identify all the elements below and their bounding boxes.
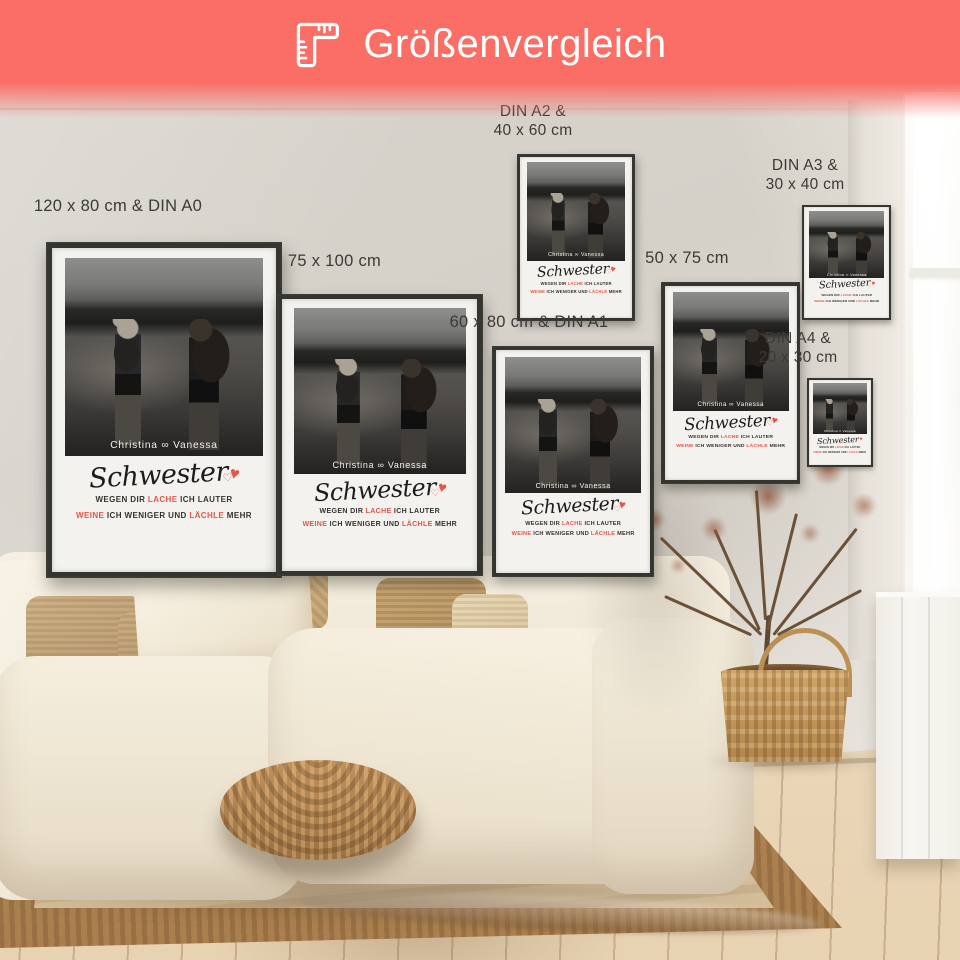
poster-120x80-din-a0: Christina ∞ Vanessa Schwester ♡ ♥ WEGEN … <box>46 242 282 578</box>
poster-names: Christina ∞ Vanessa <box>294 460 466 470</box>
radiator-cabinet <box>876 592 960 859</box>
poster-names: Christina ∞ Vanessa <box>65 440 262 451</box>
poster-caption-2: WEINE ICH WENIGER UND LÄCHLE MEHR <box>294 521 466 528</box>
woven-pouf <box>220 760 416 860</box>
header-banner: Größenvergleich <box>0 0 960 118</box>
window-glare <box>905 95 960 610</box>
poster-caption-1: WEGEN DIR LACHE ICH LAUTER <box>527 281 626 286</box>
poster-photo: Christina ∞ Vanessa <box>809 211 884 279</box>
poster-75x100: Christina ∞ Vanessa Schwester ♡ ♥ WEGEN … <box>277 294 483 577</box>
heart-icon: ♥ <box>770 415 779 427</box>
poster-caption-1: WEGEN DIR LACHE ICH LAUTER <box>294 508 466 515</box>
poster-photo: Christina ∞ Vanessa <box>65 258 262 456</box>
throw-pillow <box>452 594 528 670</box>
basket-opening <box>722 664 848 682</box>
heart-icon: ♥ <box>435 481 447 498</box>
poster-title: Schwester <box>520 495 618 519</box>
cabinet-groove <box>928 597 930 859</box>
plant-trunk <box>757 615 771 745</box>
poster-title: Schwester <box>89 458 229 492</box>
poster-names: Christina ∞ Vanessa <box>809 273 884 277</box>
poster-din-a2-40x60: Christina ∞ Vanessa Schwester ♡ ♥ WEGEN … <box>517 154 635 321</box>
poster-title: Schwester <box>684 412 771 433</box>
poster-title: Schwester <box>819 279 871 292</box>
poster-caption-1: WEGEN DIR LACHE ICH LAUTER <box>809 293 884 297</box>
woven-basket <box>718 670 852 762</box>
size-label-din-a4-20x30: DIN A4 & 20 x 30 cm <box>723 330 873 368</box>
poster-names: Christina ∞ Vanessa <box>673 401 789 408</box>
poster-50x75: Christina ∞ Vanessa Schwester ♡ ♥ WEGEN … <box>661 282 800 483</box>
throw-pillow <box>376 578 486 668</box>
poster-caption-2: WEINE ICH WENIGER UND LÄCHLE MEHR <box>673 444 789 449</box>
poster-caption-1: WEGEN DIR LACHE ICH LAUTER <box>505 521 641 527</box>
poster-title: Schwester <box>313 476 436 506</box>
throw-pillow <box>133 564 316 676</box>
poster-din-a3-30x40: Christina ∞ Vanessa Schwester ♡ ♥ WEGEN … <box>802 205 891 320</box>
throw-pillow <box>26 596 144 680</box>
poster-caption-2: WEINE ICH WENIGER UND LÄCHLE MEHR <box>65 511 262 520</box>
poster-photo: Christina ∞ Vanessa <box>813 383 868 435</box>
basket-handle <box>758 628 852 697</box>
poster-60x80-din-a1: Christina ∞ Vanessa Schwester ♡ ♥ WEGEN … <box>492 346 654 577</box>
poster-caption-2: WEINE ICH WENIGER UND LÄCHLE MEHR <box>527 289 626 294</box>
size-label-60x80-din-a1: 60 x 80 cm & DIN A1 <box>429 312 629 332</box>
cabinet-groove <box>901 597 903 859</box>
throw-pillow <box>118 612 222 690</box>
poster-caption-2: WEINE ICH WENIGER UND LÄCHLE MEHR <box>505 531 641 537</box>
heart-icon: ♥ <box>859 437 863 443</box>
poster-caption-1: WEGEN DIR LACHE ICH LAUTER <box>673 435 789 440</box>
size-label-din-a3-30x40: DIN A3 & 30 x 40 cm <box>729 157 881 195</box>
heart-icon: ♥ <box>227 464 241 483</box>
size-label-120x80-din-a0: 120 x 80 cm & DIN A0 <box>6 196 230 216</box>
poster-caption-1: WEGEN DIR LACHE ICH LAUTER <box>65 495 262 504</box>
heart-icon: ♥ <box>617 499 627 512</box>
ruler-corner-icon <box>293 18 345 70</box>
poster-photo: Christina ∞ Vanessa <box>505 357 641 493</box>
poster-caption-2: WEINE ICH WENIGER UND LÄCHLE MEHR <box>809 299 884 303</box>
page-title: Größenvergleich <box>363 22 666 67</box>
window-crossbar <box>910 268 960 277</box>
poster-caption-2: WEINE ICH WENIGER UND LÄCHLE MEHR <box>813 451 868 454</box>
poster-names: Christina ∞ Vanessa <box>813 429 868 433</box>
poster-photo: Christina ∞ Vanessa <box>294 308 466 474</box>
poster-caption-1: WEGEN DIR LACHE ICH LAUTER <box>813 446 868 449</box>
size-comparison-scene: 120 x 80 cm & DIN A0 Christina ∞ Vanessa… <box>0 0 960 960</box>
heart-icon: ♥ <box>870 281 875 288</box>
poster-title: Schwester <box>817 435 859 445</box>
poster-din-a4-20x30: Christina ∞ Vanessa Schwester ♡ ♥ WEGEN … <box>807 378 873 467</box>
poster-names: Christina ∞ Vanessa <box>505 482 641 490</box>
size-label-50x75: 50 x 75 cm <box>598 248 776 268</box>
poster-photo: Christina ∞ Vanessa <box>527 162 626 260</box>
size-label-75x100: 75 x 100 cm <box>237 251 432 271</box>
